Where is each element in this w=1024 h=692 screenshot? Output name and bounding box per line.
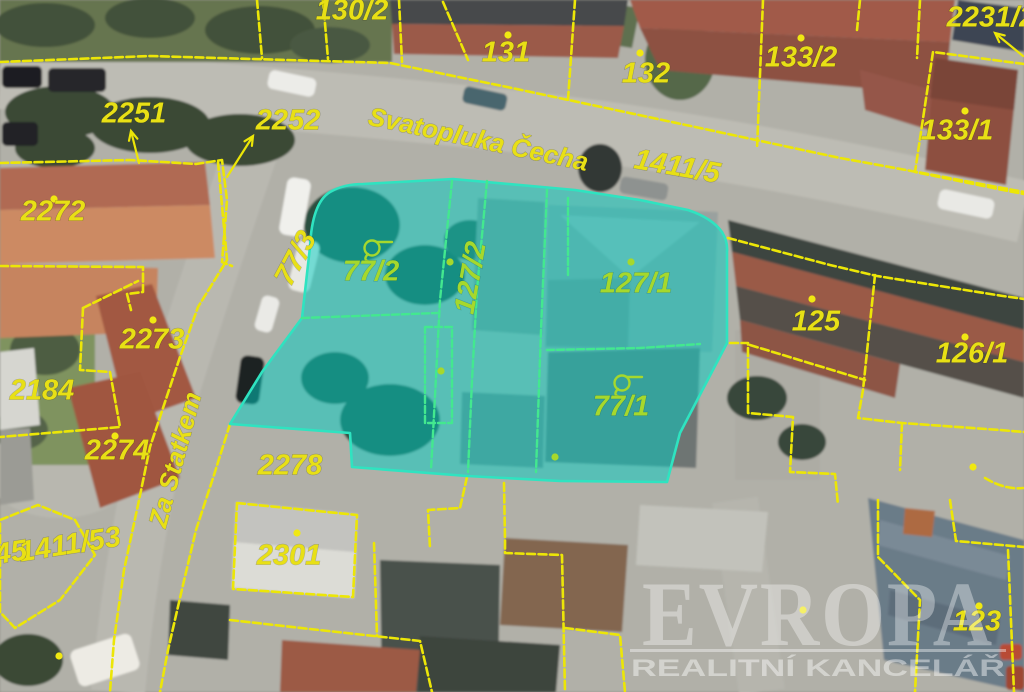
parcel-label: 127/1 <box>600 268 673 300</box>
parcel-centroid-dot <box>149 316 156 323</box>
parcel-label: 77/1 <box>593 391 649 423</box>
watermark: EVROPA REALITNÍ KANCELÁŘ <box>630 563 1006 682</box>
parcel-label: 2278 <box>257 450 323 482</box>
parcel-label: 131 <box>482 37 530 69</box>
parcel-label: 2301 <box>256 540 322 572</box>
parcel-label: 2273 <box>119 324 185 356</box>
parcel-label: 2251 <box>101 98 167 130</box>
parcel-label: 133/1 <box>921 115 994 147</box>
cadastral-map-stage: 130/2131132133/22231/2133/1225122521411/… <box>0 0 1024 692</box>
parcel-label: 2274 <box>84 435 150 467</box>
parcel-centroid-dot <box>961 107 968 114</box>
parcel-centroid-dot <box>446 258 453 265</box>
parcel-label: 126/1 <box>936 338 1009 370</box>
parcel-label: 130/2 <box>316 0 389 27</box>
parcel-label: 2231/2 <box>946 2 1024 34</box>
parcel-centroid-dot <box>636 49 643 56</box>
parcel-centroid-dot <box>797 34 804 41</box>
parcel-label: 2184 <box>9 375 75 407</box>
parcel-label: 132 <box>622 58 670 90</box>
parcel-label: 77/2 <box>343 256 399 288</box>
parcel-centroid-dot <box>437 367 444 374</box>
parcel-centroid-dot <box>627 258 634 265</box>
parcel-centroid-dot <box>293 529 300 536</box>
parcel-label: 2272 <box>20 196 86 228</box>
parcel-centroid-dot <box>551 453 558 460</box>
cadastral-map[interactable]: 130/2131132133/22231/2133/1225122521411/… <box>0 0 1024 692</box>
watermark-divider <box>630 649 1006 652</box>
parcel-label: 125 <box>792 306 841 338</box>
parcel-centroid-dot <box>969 463 976 470</box>
watermark-subtitle: REALITNÍ KANCELÁŘ <box>631 654 1005 682</box>
parcel-label: 133/2 <box>765 42 838 74</box>
parcel-centroid-dot <box>808 295 815 302</box>
parcel-label: 2252 <box>255 105 321 137</box>
parcel-centroid-dot <box>55 652 62 659</box>
